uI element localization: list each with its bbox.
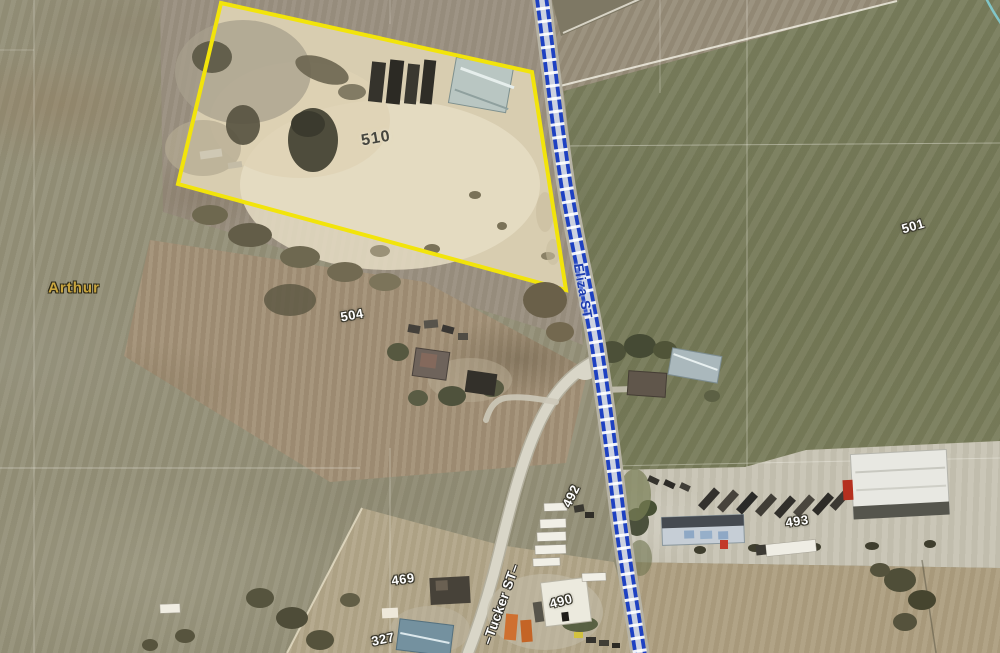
- eliza-street-road: [541, 0, 641, 653]
- vehicles: [407, 319, 853, 648]
- farm-house: [412, 348, 450, 380]
- town-label: Arthur: [48, 280, 100, 297]
- building-493: [662, 515, 745, 546]
- east-barn: [668, 348, 722, 383]
- pit-surface: [165, 3, 566, 290]
- parcel-510-label: 510: [360, 128, 392, 151]
- field-boundaries: [287, 0, 936, 653]
- warehouse: [850, 450, 949, 519]
- pit-machinery: [368, 59, 436, 104]
- pit-building: [448, 57, 515, 112]
- mid-scrub-terrain: [0, 0, 1000, 653]
- parcel-501-label: 501: [900, 216, 926, 237]
- dark-field-triangle: [0, 0, 1000, 653]
- bottom-scrub-terrain: [0, 0, 1000, 653]
- left-field-terrain: [0, 0, 1000, 653]
- building-490: [540, 577, 591, 626]
- parcel-490-label: 490: [548, 591, 574, 611]
- headland-terrain: [0, 0, 1000, 653]
- upper-scrub-terrain: [0, 0, 1000, 653]
- parcel-510-boundary[interactable]: [178, 3, 566, 290]
- parcel-469-label: 469: [390, 570, 415, 588]
- trees-scrub: [142, 205, 936, 651]
- parcel-327-label: 327: [370, 629, 396, 648]
- map-overlay-svg: [0, 0, 1000, 653]
- eliza-street-label: Eliza ST: [571, 262, 595, 320]
- industrial-lot-terrain: [0, 0, 1000, 653]
- aerial-map-canvas[interactable]: Arthur 510 504 501 492 469 490 493 327 E…: [0, 0, 1000, 653]
- east-house: [627, 371, 667, 398]
- bottom-blue-building: [396, 619, 453, 653]
- grid-lines: [0, 0, 1000, 653]
- tucker-street-label: –Tucker ST–: [479, 562, 522, 647]
- stream-curve: [984, 0, 1000, 62]
- buildings: [160, 348, 950, 653]
- right-green-field-terrain: [0, 0, 1000, 653]
- tucker-street-road: [468, 360, 662, 653]
- parcel-492-label: 492: [559, 482, 583, 509]
- parcel-504-label: 504: [339, 306, 364, 325]
- gravel-pads: [390, 358, 603, 653]
- tucker-dark-house: [429, 576, 470, 605]
- farm-shed: [465, 370, 498, 396]
- parcel-493-label: 493: [784, 512, 809, 530]
- bottom-right-field-terrain: [0, 0, 1000, 653]
